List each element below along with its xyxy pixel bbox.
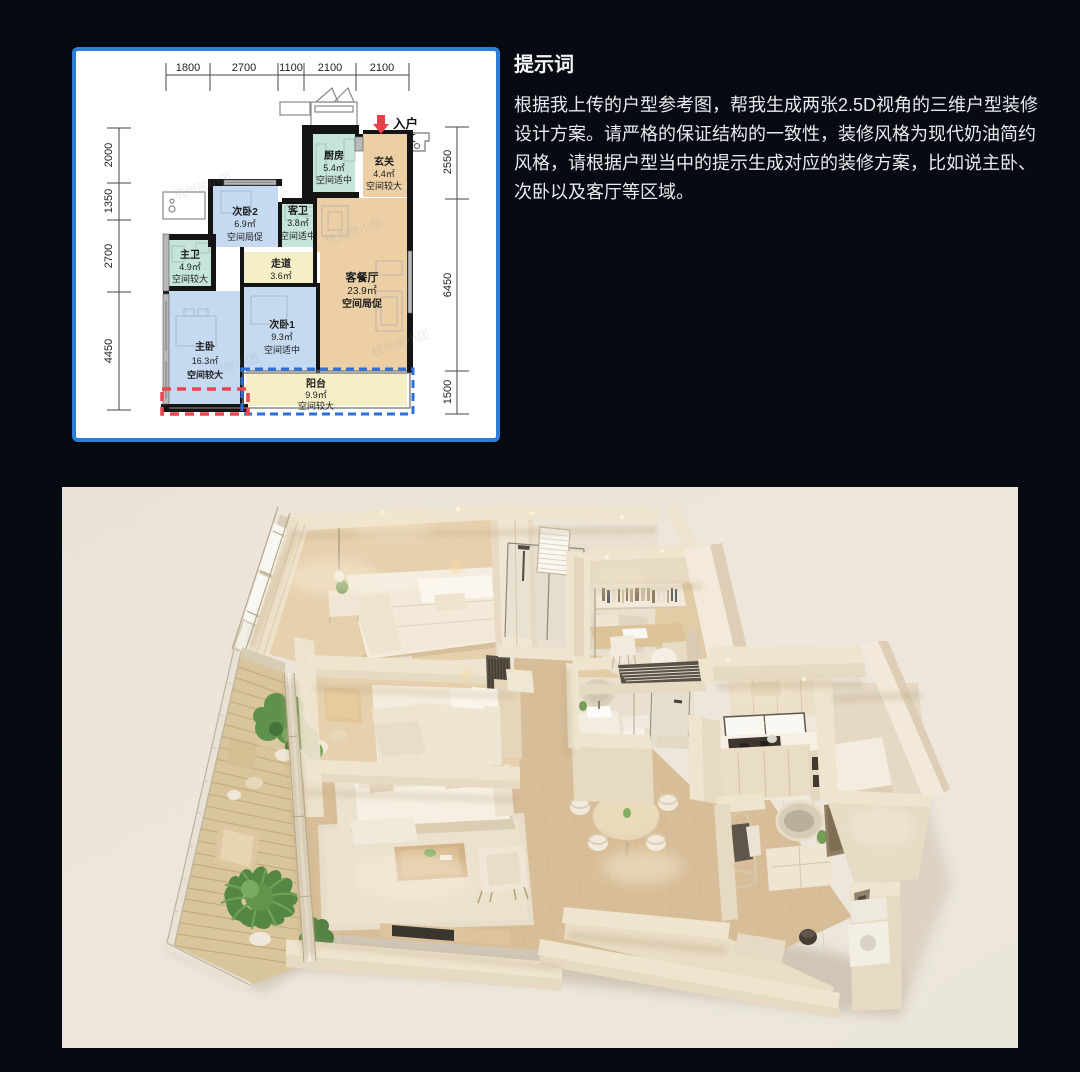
svg-text:6.9㎡: 6.9㎡ — [234, 219, 256, 229]
svg-text:入户: 入户 — [393, 116, 418, 131]
svg-text:1800: 1800 — [176, 62, 200, 74]
svg-text:2700: 2700 — [232, 62, 256, 74]
svg-text:9.9㎡: 9.9㎡ — [305, 390, 327, 400]
svg-text:空间局促: 空间局促 — [227, 231, 263, 242]
svg-text:1500: 1500 — [442, 380, 454, 404]
svg-text:1350: 1350 — [103, 189, 115, 213]
svg-text:23.9㎡: 23.9㎡ — [347, 285, 376, 297]
svg-text:2100: 2100 — [318, 62, 342, 74]
svg-text:1100: 1100 — [279, 62, 303, 74]
svg-text:2550: 2550 — [442, 150, 454, 174]
svg-text:主卫: 主卫 — [180, 248, 200, 261]
svg-text:9.3㎡: 9.3㎡ — [271, 332, 293, 342]
svg-text:2100: 2100 — [370, 62, 394, 74]
svg-text:空间适中: 空间适中 — [280, 230, 316, 241]
svg-text:厨房: 厨房 — [324, 149, 344, 162]
svg-text:空间适中: 空间适中 — [264, 344, 300, 355]
svg-text:4.9㎡: 4.9㎡ — [179, 262, 201, 272]
svg-text:走道: 走道 — [270, 257, 291, 270]
svg-text:5.4㎡: 5.4㎡ — [323, 163, 345, 173]
svg-text:阳台: 阳台 — [306, 377, 326, 390]
svg-text:主卧: 主卧 — [195, 340, 215, 353]
svg-text:空间适中: 空间适中 — [316, 174, 352, 185]
svg-text:玄关: 玄关 — [374, 155, 394, 168]
svg-text:空间较大: 空间较大 — [366, 180, 402, 191]
svg-text:2000: 2000 — [103, 143, 115, 167]
svg-text:空间较大: 空间较大 — [172, 273, 208, 284]
svg-text:4450: 4450 — [103, 339, 115, 363]
svg-text:4.4㎡: 4.4㎡ — [373, 169, 395, 179]
svg-text:次卧2: 次卧2 — [232, 205, 258, 218]
svg-text:2700: 2700 — [103, 244, 115, 268]
svg-text:3.6㎡: 3.6㎡ — [270, 271, 292, 281]
svg-text:3.8㎡: 3.8㎡ — [287, 218, 309, 228]
svg-text:空间局促: 空间局促 — [342, 297, 383, 310]
svg-text:客卫: 客卫 — [287, 204, 308, 217]
svg-text:次卧1: 次卧1 — [269, 318, 295, 331]
svg-text:6450: 6450 — [442, 273, 454, 297]
svg-text:空间较大: 空间较大 — [298, 400, 334, 411]
svg-text:客餐厅: 客餐厅 — [345, 270, 379, 284]
